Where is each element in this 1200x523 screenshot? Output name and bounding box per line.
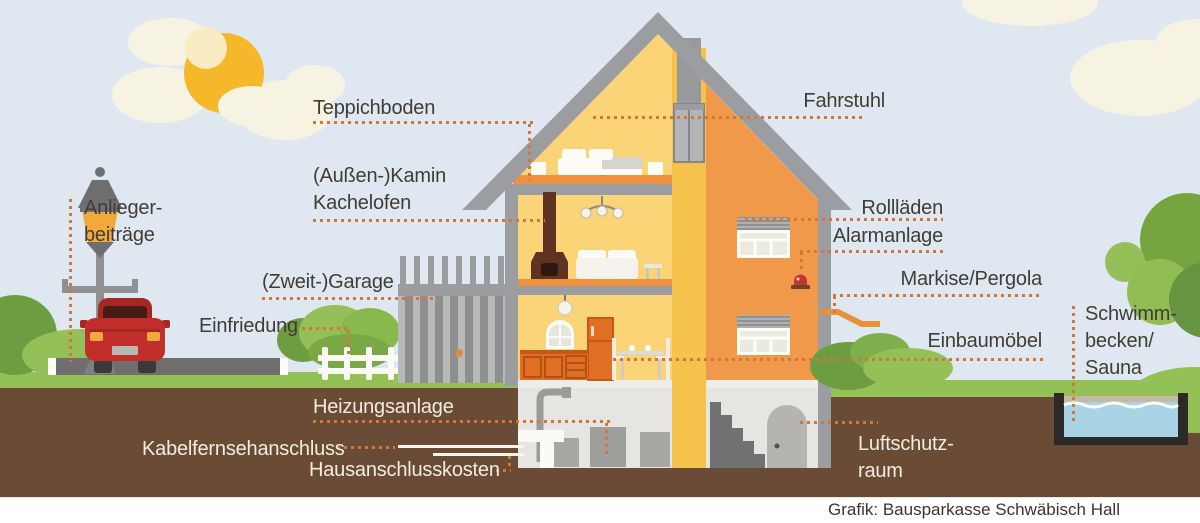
leader-einfriedung-drop: [347, 330, 350, 357]
garage-railing: [400, 256, 516, 286]
shelter-door: [767, 405, 807, 468]
garage: [398, 256, 518, 383]
label-text: Anlieger-: [84, 195, 162, 222]
leader-markise-drop: [833, 296, 836, 314]
label-text: Sauna: [1085, 355, 1177, 382]
elevator-car: [674, 104, 704, 162]
label-text: Alarmanlage: [833, 225, 943, 247]
leader-alarmanlage-drop: [800, 252, 803, 272]
label-text: beiträge: [84, 222, 162, 249]
label-einfriedung: Einfriedung: [199, 313, 298, 340]
leader-kabelfernseh: [337, 446, 395, 449]
leader-anlieger: [69, 199, 72, 362]
left-wall: [505, 195, 518, 386]
label-text: Markise/Pergola: [900, 268, 1042, 290]
arched-window: [546, 320, 574, 349]
leader-markise: [833, 294, 1041, 297]
infographic-scene: Teppichboden (Außen-)Kamin Kachelofen (Z…: [0, 0, 1200, 523]
label-text: Hausanschlusskosten: [309, 459, 500, 481]
leader-luftschutzraum: [800, 421, 878, 424]
leader-garage: [262, 297, 438, 300]
carpet: [513, 175, 672, 184]
credit-text: Grafik: Bausparkasse Schwäbisch Hall: [828, 500, 1120, 520]
window-upper: [737, 217, 790, 258]
leader-kabelfernseh-line: [398, 445, 524, 448]
garage-door-handle: [455, 349, 463, 357]
leader-schwimmbecken: [1072, 306, 1075, 424]
label-garage: (Zweit-)Garage: [262, 269, 394, 296]
label-text: Kachelofen: [313, 190, 446, 217]
label-alarmanlage: Alarmanlage: [833, 223, 943, 250]
label-text: Luftschutz-: [858, 431, 954, 458]
label-luftschutzraum: Luftschutz- raum: [858, 431, 954, 485]
label-text: (Zweit-)Garage: [262, 271, 394, 293]
label-markise-pergola: Markise/Pergola: [900, 266, 1042, 293]
label-text: (Außen-)Kamin: [313, 163, 446, 190]
label-hausanschlusskosten: Hausanschlusskosten: [309, 457, 500, 484]
label-text: Einfriedung: [199, 315, 298, 337]
label-text: Rollläden: [861, 197, 943, 219]
road: [48, 358, 288, 375]
label-anliegerbeitraege: Anlieger- beiträge: [84, 195, 162, 249]
label-rolllaeden: Rollläden: [861, 195, 943, 222]
label-text: becken/: [1085, 328, 1177, 355]
label-kamin-kachelofen: (Außen-)Kamin Kachelofen: [313, 163, 446, 217]
label-text: Heizungsanlage: [313, 396, 454, 418]
label-fahrstuhl: Fahrstuhl: [803, 88, 885, 115]
leader-kamin: [313, 219, 545, 222]
leader-heizung-drop: [605, 423, 608, 458]
label-text: Schwimm-: [1085, 301, 1177, 328]
credit-bar: Grafik: Bausparkasse Schwäbisch Hall: [0, 497, 1200, 523]
attic-chair-left: [531, 162, 546, 176]
label-einbaumoebel: Einbaumöbel: [927, 328, 1042, 355]
right-wall: [818, 200, 831, 468]
label-text: raum: [858, 458, 954, 485]
attic-chair-right: [648, 162, 663, 176]
label-heizungsanlage: Heizungsanlage: [313, 394, 454, 421]
leader-einbaumoebel: [613, 358, 1043, 361]
leader-hausanschluss-rise: [508, 456, 511, 469]
window-lower: [737, 315, 790, 355]
garage-door: [398, 296, 518, 383]
label-schwimmbecken-sauna: Schwimm- becken/ Sauna: [1085, 301, 1177, 382]
label-text: Fahrstuhl: [803, 90, 885, 112]
leader-teppichboden-drop: [528, 124, 531, 181]
leader-einfriedung: [302, 327, 350, 330]
pool-water: [1064, 402, 1178, 437]
leader-alarmanlage: [800, 250, 943, 253]
leader-fahrstuhl: [593, 116, 862, 119]
roller-shutter-lower: [737, 315, 790, 328]
label-text: Teppichboden: [313, 97, 435, 119]
label-teppichboden: Teppichboden: [313, 95, 435, 122]
label-text: Einbaumöbel: [927, 330, 1042, 352]
